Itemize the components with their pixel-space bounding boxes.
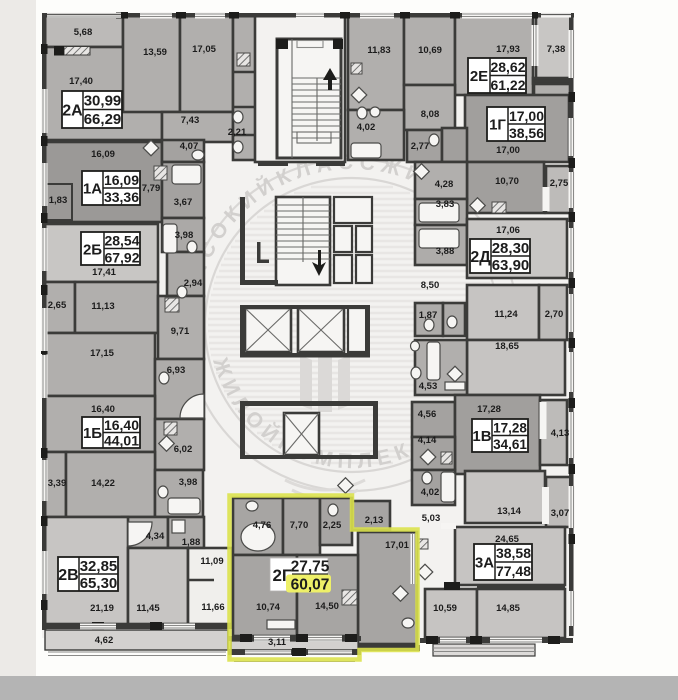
svg-text:38,56: 38,56 (509, 125, 544, 141)
svg-text:5,68: 5,68 (74, 27, 93, 38)
svg-text:3,39: 3,39 (48, 478, 67, 489)
svg-text:2,21: 2,21 (228, 127, 247, 138)
svg-text:11,66: 11,66 (201, 602, 224, 613)
svg-text:3,67: 3,67 (174, 197, 193, 208)
svg-text:2А: 2А (62, 102, 83, 119)
svg-text:13,14: 13,14 (497, 506, 521, 517)
svg-text:2Б: 2Б (83, 241, 102, 258)
svg-text:2В: 2В (58, 567, 78, 584)
svg-text:17,28: 17,28 (477, 404, 501, 415)
svg-text:44,01: 44,01 (104, 432, 139, 448)
svg-text:6,93: 6,93 (167, 365, 186, 376)
svg-text:3,07: 3,07 (551, 508, 570, 519)
svg-text:17,00: 17,00 (496, 145, 520, 156)
svg-text:4,28: 4,28 (435, 179, 454, 190)
svg-text:3,88: 3,88 (436, 246, 455, 257)
svg-text:17,00: 17,00 (509, 108, 544, 124)
svg-text:28,54: 28,54 (104, 233, 139, 249)
svg-text:4,02: 4,02 (421, 487, 440, 498)
svg-text:28,30: 28,30 (492, 240, 530, 257)
svg-text:4,13: 4,13 (551, 428, 570, 439)
svg-text:1Г: 1Г (489, 116, 506, 133)
svg-text:3,98: 3,98 (175, 230, 194, 241)
svg-text:7,43: 7,43 (181, 115, 200, 126)
svg-text:11,45: 11,45 (136, 603, 160, 614)
svg-text:4,56: 4,56 (418, 409, 437, 420)
svg-text:3А: 3А (475, 554, 494, 571)
svg-text:10,69: 10,69 (418, 45, 442, 56)
svg-text:77,48: 77,48 (496, 563, 531, 579)
svg-text:3,83: 3,83 (436, 199, 455, 210)
svg-text:34,61: 34,61 (493, 437, 527, 452)
svg-text:4,76: 4,76 (253, 520, 272, 531)
svg-text:4,14: 4,14 (418, 435, 437, 446)
svg-text:32,85: 32,85 (80, 558, 118, 575)
svg-text:1Б: 1Б (83, 425, 102, 442)
svg-text:61,22: 61,22 (490, 77, 525, 93)
svg-text:10,59: 10,59 (433, 603, 457, 614)
svg-text:27,75: 27,75 (291, 559, 330, 576)
svg-text:2,75: 2,75 (550, 178, 569, 189)
svg-text:4,07: 4,07 (180, 141, 199, 152)
svg-text:16,40: 16,40 (91, 404, 115, 415)
svg-text:17,41: 17,41 (92, 267, 116, 278)
svg-text:33,36: 33,36 (104, 189, 139, 205)
svg-text:8,08: 8,08 (421, 109, 440, 120)
svg-text:1,83: 1,83 (49, 195, 68, 206)
svg-text:2,13: 2,13 (365, 515, 384, 526)
svg-text:17,06: 17,06 (496, 225, 520, 236)
svg-text:2,65: 2,65 (48, 300, 67, 311)
svg-text:9,71: 9,71 (171, 326, 190, 337)
svg-text:4,34: 4,34 (146, 531, 165, 542)
svg-text:14,22: 14,22 (91, 478, 115, 489)
svg-text:67,92: 67,92 (104, 250, 139, 266)
svg-text:11,24: 11,24 (494, 309, 518, 320)
svg-text:28,62: 28,62 (490, 59, 525, 75)
svg-text:4,62: 4,62 (95, 635, 114, 646)
svg-text:2Е: 2Е (470, 68, 488, 85)
svg-text:38,58: 38,58 (496, 545, 531, 561)
svg-text:7,79: 7,79 (142, 183, 161, 194)
svg-text:2,77: 2,77 (411, 141, 430, 152)
svg-text:17,40: 17,40 (69, 76, 93, 87)
svg-text:66,29: 66,29 (84, 111, 122, 128)
svg-text:7,70: 7,70 (290, 520, 309, 531)
svg-text:14,50: 14,50 (315, 601, 339, 612)
svg-text:7,38: 7,38 (547, 44, 566, 55)
svg-text:11,13: 11,13 (91, 301, 114, 312)
svg-text:1,87: 1,87 (419, 310, 438, 321)
svg-text:16,40: 16,40 (104, 417, 139, 433)
svg-text:8,50: 8,50 (421, 280, 440, 291)
svg-text:4,53: 4,53 (419, 381, 438, 392)
svg-text:65,30: 65,30 (80, 575, 118, 592)
svg-text:21,19: 21,19 (90, 603, 114, 614)
svg-text:1В: 1В (472, 428, 491, 445)
svg-text:4,02: 4,02 (357, 122, 376, 133)
svg-text:3,98: 3,98 (179, 477, 198, 488)
svg-text:17,01: 17,01 (385, 540, 409, 551)
svg-text:30,99: 30,99 (84, 93, 122, 110)
svg-text:5,03: 5,03 (422, 513, 441, 524)
svg-text:3,11: 3,11 (268, 637, 287, 648)
svg-text:2,94: 2,94 (184, 278, 203, 289)
svg-text:17,28: 17,28 (493, 420, 527, 435)
svg-text:2,70: 2,70 (545, 309, 564, 320)
svg-text:16,09: 16,09 (104, 172, 139, 188)
svg-text:18,65: 18,65 (495, 341, 519, 352)
svg-text:17,05: 17,05 (192, 44, 216, 55)
svg-text:14,85: 14,85 (496, 603, 520, 614)
svg-text:1А: 1А (83, 181, 102, 198)
svg-text:6,02: 6,02 (174, 444, 193, 455)
svg-text:2Г: 2Г (272, 566, 291, 585)
svg-text:11,09: 11,09 (200, 556, 223, 567)
svg-text:17,15: 17,15 (90, 348, 114, 359)
svg-text:10,70: 10,70 (495, 176, 519, 187)
svg-text:60,07: 60,07 (291, 577, 330, 594)
svg-text:13,59: 13,59 (143, 47, 167, 58)
svg-text:10,74: 10,74 (256, 602, 280, 613)
svg-text:63,90: 63,90 (492, 257, 530, 274)
svg-text:1,88: 1,88 (182, 537, 201, 548)
svg-text:17,93: 17,93 (496, 44, 520, 55)
svg-text:11,83: 11,83 (367, 45, 390, 56)
svg-text:2Д: 2Д (470, 249, 491, 266)
svg-text:16,09: 16,09 (91, 149, 115, 160)
svg-text:2,25: 2,25 (323, 520, 342, 531)
